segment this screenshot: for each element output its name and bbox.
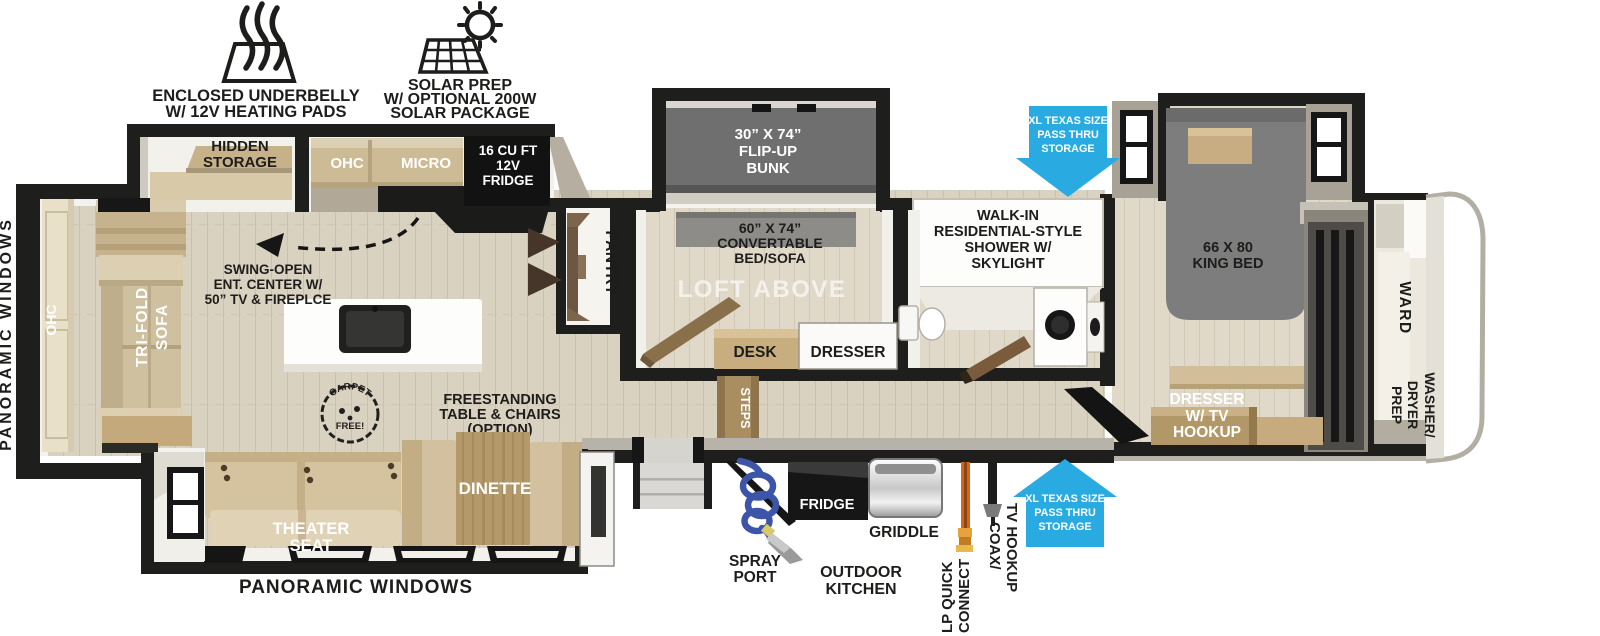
svg-text:DINETTE: DINETTE xyxy=(459,479,532,498)
svg-text:XL TEXAS SIZE: XL TEXAS SIZE xyxy=(1025,493,1105,505)
svg-text:OUTDOOR: OUTDOOR xyxy=(820,564,902,581)
svg-text:DESK: DESK xyxy=(733,344,777,361)
svg-text:LP QUICK: LP QUICK xyxy=(939,561,956,633)
svg-text:OHC: OHC xyxy=(330,155,364,172)
svg-text:SOFA: SOFA xyxy=(154,304,171,350)
svg-text:30” X 74”: 30” X 74” xyxy=(735,126,802,143)
svg-text:W/ 12V HEATING PADS: W/ 12V HEATING PADS xyxy=(166,103,347,121)
svg-text:PREP: PREP xyxy=(1389,386,1405,424)
svg-text:PANORAMIC WINDOWS: PANORAMIC WINDOWS xyxy=(239,577,473,598)
svg-text:DRESSER: DRESSER xyxy=(1170,391,1245,408)
svg-text:SPRAY: SPRAY xyxy=(729,553,782,570)
svg-text:PASS THRU: PASS THRU xyxy=(1034,507,1096,519)
svg-text:ENT. CENTER W/: ENT. CENTER W/ xyxy=(214,277,323,292)
svg-text:W/ TV: W/ TV xyxy=(1185,408,1229,425)
svg-text:STORAGE: STORAGE xyxy=(203,154,277,171)
svg-text:OHC: OHC xyxy=(43,304,59,335)
svg-text:FLIP-UP: FLIP-UP xyxy=(739,143,797,160)
svg-text:CONVERTABLE: CONVERTABLE xyxy=(717,235,823,251)
svg-text:SKYLIGHT: SKYLIGHT xyxy=(971,256,1044,272)
svg-text:DRESSER: DRESSER xyxy=(811,344,886,361)
svg-text:PANORAMIC WINDOWS: PANORAMIC WINDOWS xyxy=(0,217,15,451)
svg-text:THEATER: THEATER xyxy=(273,520,350,538)
svg-text:STEPS: STEPS xyxy=(738,388,752,429)
svg-text:KITCHEN: KITCHEN xyxy=(825,581,896,598)
svg-text:MICRO: MICRO xyxy=(401,155,451,172)
svg-text:LOFT ABOVE: LOFT ABOVE xyxy=(678,276,847,303)
svg-text:SEAT: SEAT xyxy=(290,537,333,555)
svg-text:SWING-OPEN: SWING-OPEN xyxy=(224,262,313,277)
svg-text:WALK-IN: WALK-IN xyxy=(977,208,1039,224)
svg-text:PANTRY: PANTRY xyxy=(602,231,619,296)
svg-text:WASHER/: WASHER/ xyxy=(1422,372,1438,437)
svg-text:SHOWER W/: SHOWER W/ xyxy=(965,240,1052,256)
svg-text:STORAGE: STORAGE xyxy=(1041,143,1094,155)
svg-text:GRIDDLE: GRIDDLE xyxy=(869,524,939,541)
svg-text:WARD: WARD xyxy=(1396,281,1413,334)
svg-text:COAX/: COAX/ xyxy=(986,522,1003,570)
svg-text:BUNK: BUNK xyxy=(746,160,789,177)
svg-text:HIDDEN: HIDDEN xyxy=(211,138,269,155)
svg-text:RESIDENTIAL-STYLE: RESIDENTIAL-STYLE xyxy=(934,224,1083,240)
svg-text:FREESTANDING: FREESTANDING xyxy=(443,392,556,408)
svg-text:60” X 74”: 60” X 74” xyxy=(739,220,801,236)
svg-text:TABLE & CHAIRS: TABLE & CHAIRS xyxy=(439,407,561,423)
svg-text:TV HOOKUP: TV HOOKUP xyxy=(1003,503,1020,592)
svg-text:FRIDGE: FRIDGE xyxy=(800,497,855,513)
svg-text:HOOKUP: HOOKUP xyxy=(1173,424,1241,441)
svg-text:CONNECT: CONNECT xyxy=(956,559,973,633)
svg-text:KING BED: KING BED xyxy=(1193,256,1264,272)
svg-text:50” TV & FIREPLCE: 50” TV & FIREPLCE xyxy=(205,292,332,307)
svg-text:BED/SOFA: BED/SOFA xyxy=(734,250,806,266)
svg-text:TRI-FOLD: TRI-FOLD xyxy=(134,287,151,367)
svg-text:PASS THRU: PASS THRU xyxy=(1037,129,1099,141)
svg-text:STORAGE: STORAGE xyxy=(1038,521,1091,533)
svg-text:DRYER: DRYER xyxy=(1405,381,1421,430)
svg-text:PORT: PORT xyxy=(733,569,777,586)
svg-text:FREE!: FREE! xyxy=(336,421,365,432)
svg-text:16 CU FT: 16 CU FT xyxy=(479,143,538,158)
svg-text:SOLAR PACKAGE: SOLAR PACKAGE xyxy=(390,105,530,122)
svg-text:XL TEXAS SIZE: XL TEXAS SIZE xyxy=(1028,115,1108,127)
svg-text:12V: 12V xyxy=(496,158,520,173)
svg-text:66 X 80: 66 X 80 xyxy=(1203,240,1253,256)
svg-text:FRIDGE: FRIDGE xyxy=(482,173,533,188)
